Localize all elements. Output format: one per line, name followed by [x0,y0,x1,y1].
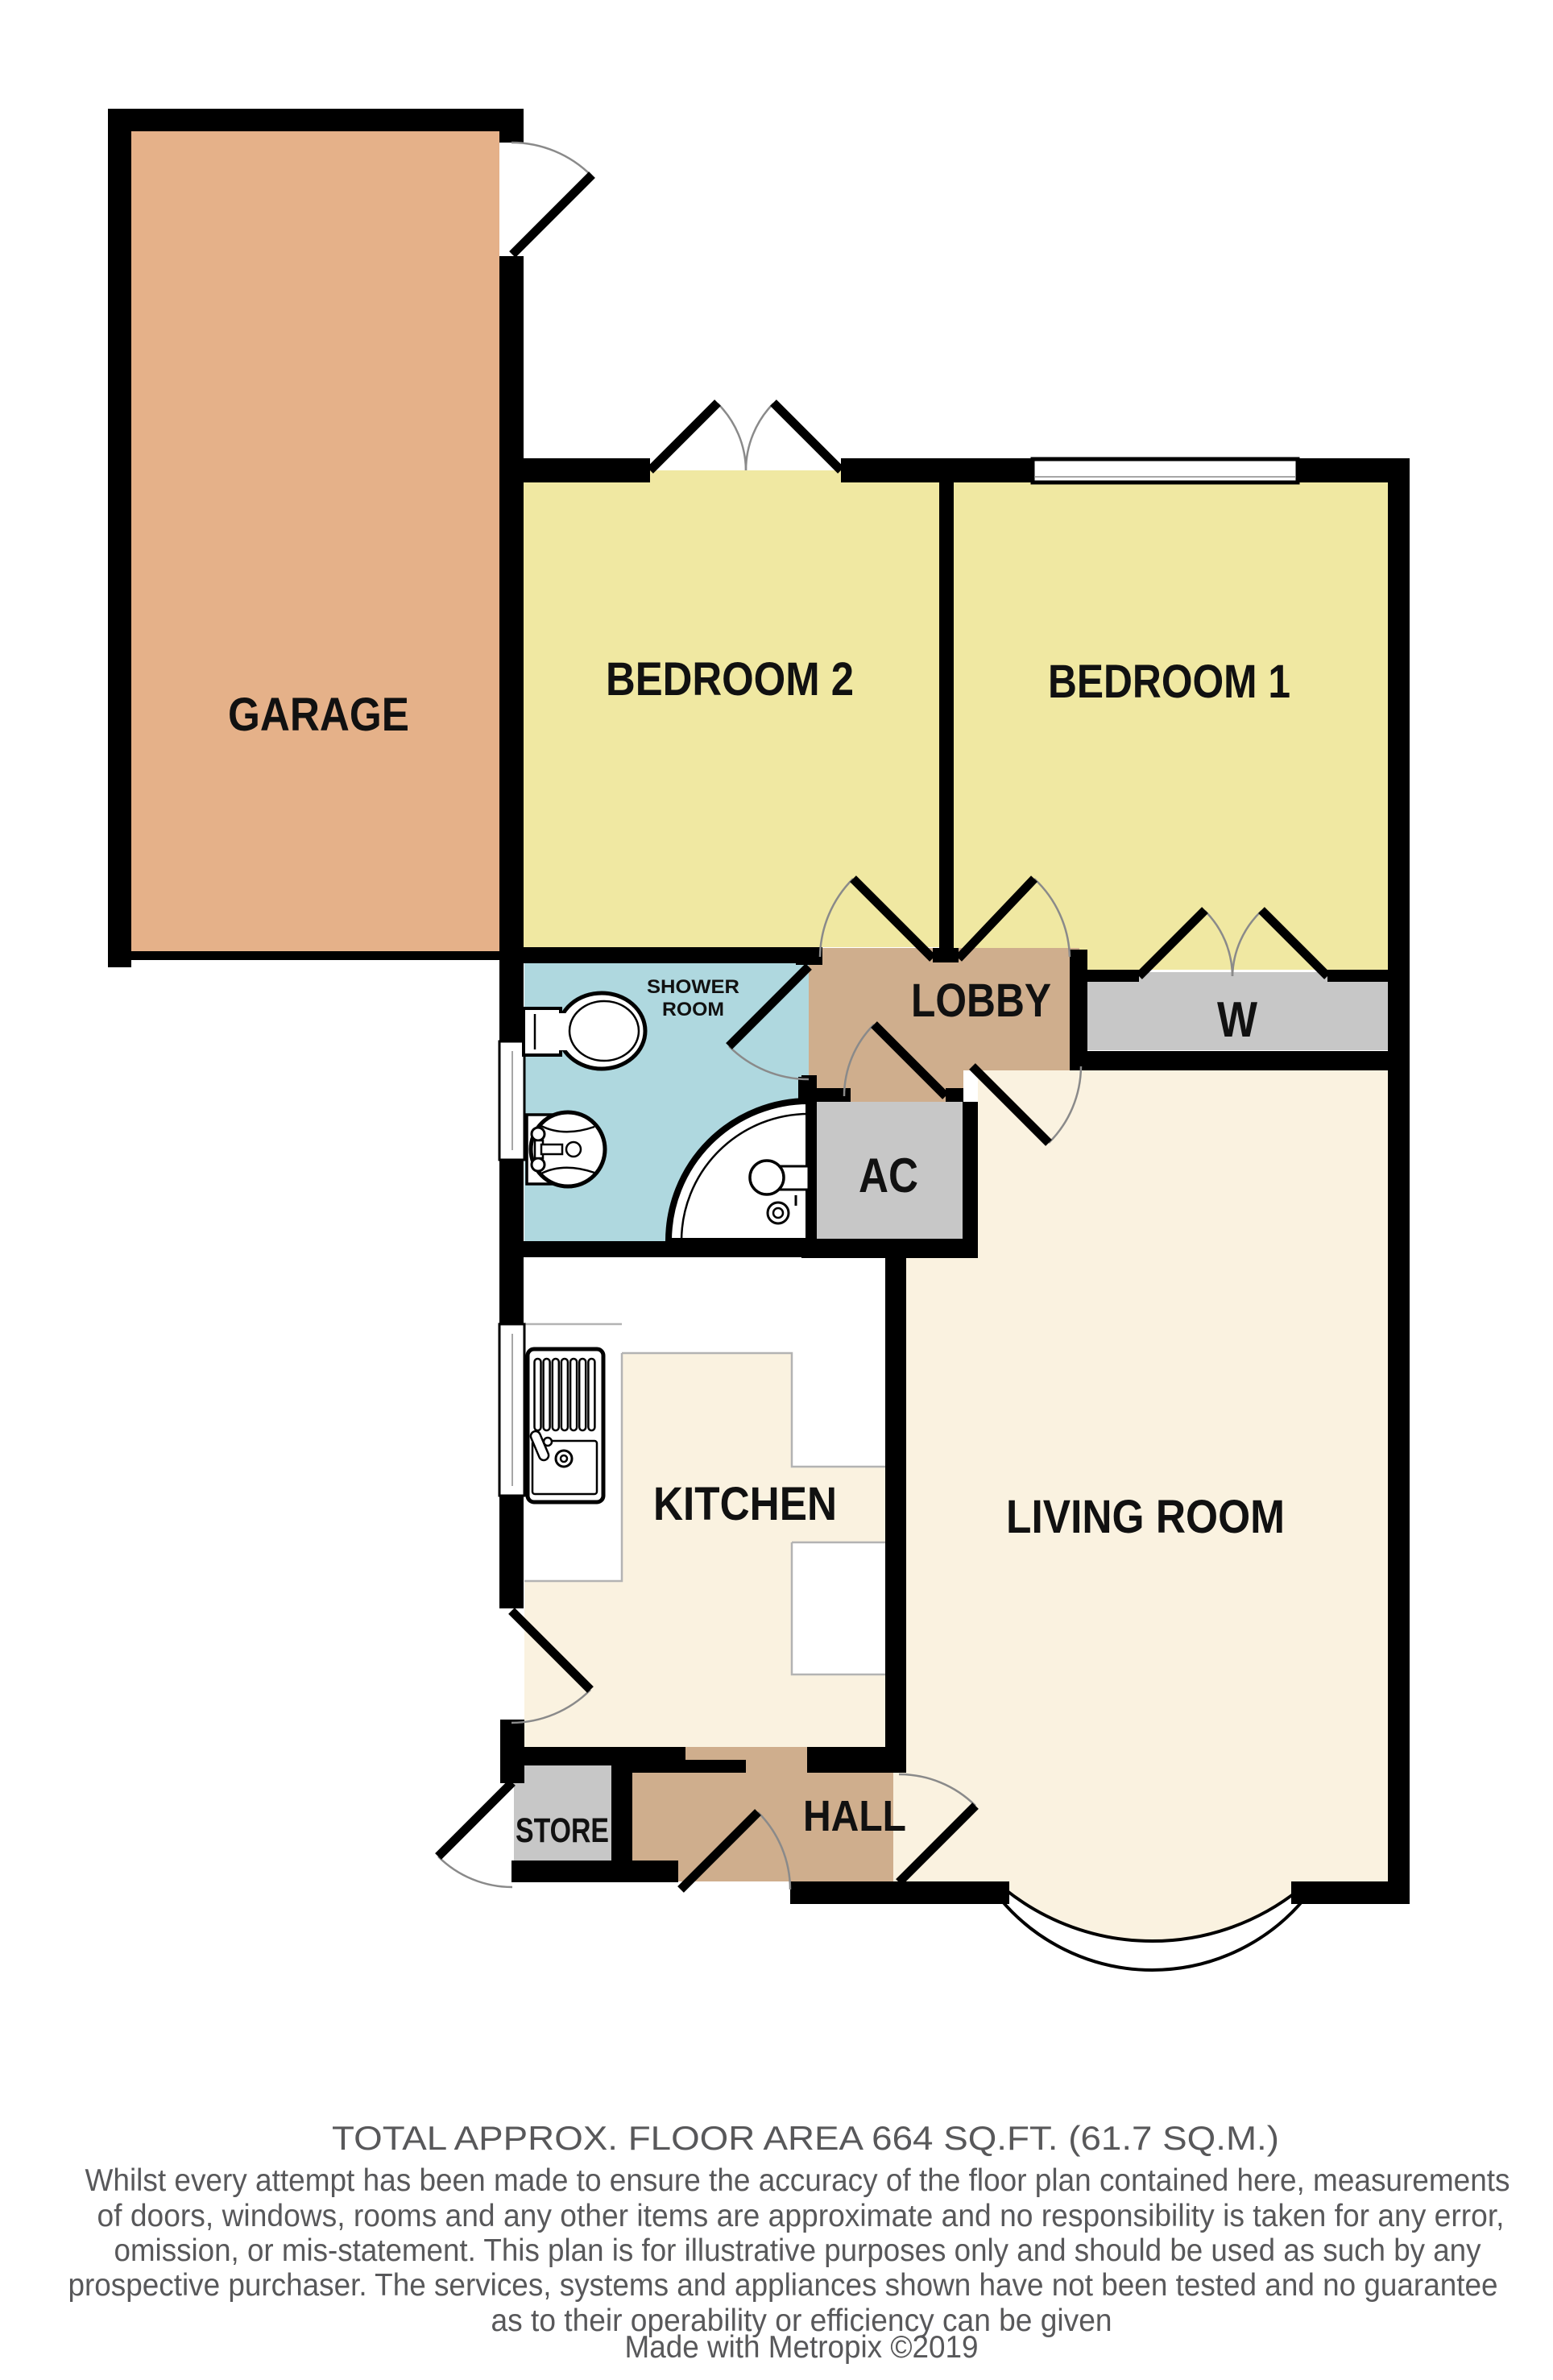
svg-text:LIVING ROOM: LIVING ROOM [1006,1491,1285,1543]
svg-text:Whilst every attempt has been: Whilst every attempt has been made to en… [85,2163,1510,2198]
svg-text:GARAGE: GARAGE [228,689,409,741]
svg-text:AC: AC [859,1149,918,1202]
svg-text:Made with Metropix ©2019: Made with Metropix ©2019 [625,2330,979,2365]
svg-text:prospective purchaser. The ser: prospective purchaser. The services, sys… [68,2268,1498,2303]
svg-text:TOTAL APPROX. FLOOR AREA 664 S: TOTAL APPROX. FLOOR AREA 664 SQ.FT. (61.… [332,2119,1279,2157]
svg-text:of doors, windows, rooms and a: of doors, windows, rooms and any other i… [97,2199,1505,2233]
svg-text:BEDROOM 1: BEDROOM 1 [1048,656,1290,708]
svg-text:ROOM: ROOM [662,999,724,1020]
svg-text:HALL: HALL [803,1792,906,1840]
svg-text:STORE: STORE [516,1811,609,1850]
svg-text:KITCHEN: KITCHEN [653,1478,837,1530]
svg-text:LOBBY: LOBBY [911,975,1051,1027]
svg-text:BEDROOM 2: BEDROOM 2 [606,653,854,706]
svg-text:SHOWER: SHOWER [647,976,739,998]
svg-text:W: W [1217,992,1257,1048]
svg-text:omission, or mis-statement. Th: omission, or mis-statement. This plan is… [114,2233,1481,2268]
